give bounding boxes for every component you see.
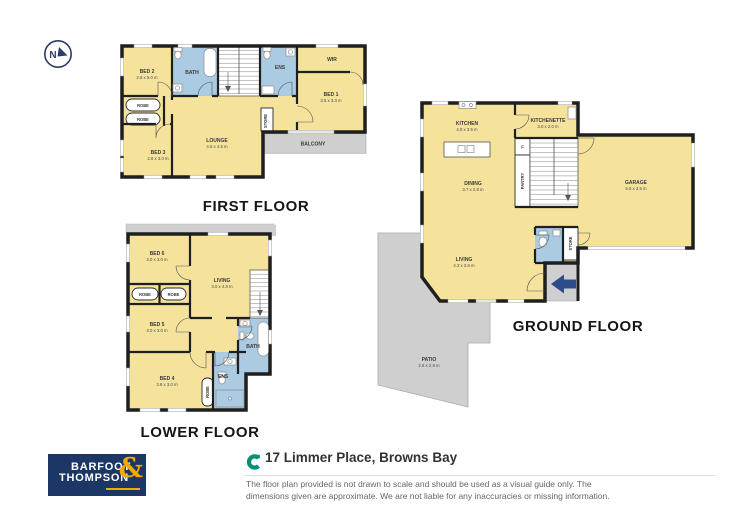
compass-arrow-icon: [58, 47, 68, 57]
room-dims-bed1: 3.5 x 3.3 m: [320, 98, 342, 103]
room-dims-bed6: 3.0 x 3.0 m: [146, 257, 168, 262]
room-label-robe: ROBE: [205, 386, 210, 398]
room-dims-living: 3.0 x 4.8 m: [211, 284, 233, 289]
room-dims-bed4: 3.8 x 3.0 m: [156, 382, 178, 387]
disclaimer-line2: dimensions given are approximate. We are…: [246, 491, 610, 502]
disclaimer-line1: The floor plan provided is not drawn to …: [246, 479, 592, 490]
ground-floor-title: GROUND FLOOR: [513, 318, 644, 335]
room-dims-kitchen: 4.5 x 3.5 m: [456, 127, 478, 132]
logo-ampersand: &: [119, 454, 143, 484]
brand-c-icon: [246, 454, 261, 470]
first-floor-plan: BED 2 2.8 x 5.0 m BATH ENS WIR BED 1 3.5…: [120, 44, 372, 196]
room-label-ens: ENS: [218, 374, 229, 380]
room-dims-bed2: 2.8 x 5.0 m: [136, 75, 158, 80]
room-label-store: STORE: [568, 236, 573, 250]
room-dims-dining: 3.7 x 2.8 m: [462, 187, 484, 192]
room-label-store: STORE: [263, 114, 268, 128]
floor-plan-page: N: [0, 0, 749, 531]
room-label-wir: WIR: [327, 57, 337, 63]
room-label-ens: ENS: [275, 65, 286, 71]
property-address: 17 Limmer Place, Browns Bay: [265, 450, 457, 465]
barfoot-thompson-logo: BARFOOT THOMPSON &: [48, 454, 146, 496]
room-label-balcony: BALCONY: [301, 142, 326, 148]
first-floor-title: FIRST FLOOR: [203, 198, 310, 215]
garage-door: [588, 246, 685, 250]
room-label-robe: ROBE: [139, 292, 151, 297]
logo-gold-bar: [106, 488, 140, 491]
room-dims-lounge: 4.5 x 4.5 m: [206, 144, 228, 149]
room-dims-living: 4.3 x 3.6 m: [453, 263, 475, 268]
room-label-bath: BATH: [185, 70, 199, 76]
room-label-robe: ROBE: [137, 117, 149, 122]
lower-floor-title: LOWER FLOOR: [140, 424, 259, 441]
room-label-bath: BATH: [246, 344, 260, 350]
ground-floor-plan: KITCHEN 4.5 x 3.5 m KITCHENETTE 3.0 x 2.…: [372, 85, 717, 415]
room-dims-bed5: 3.0 x 3.0 m: [146, 328, 168, 333]
terrain-strip: [126, 224, 274, 233]
room-dims-bed3: 2.8 x 3.0 m: [147, 156, 169, 161]
north-compass-icon: N: [42, 38, 74, 70]
compass-north-label: N: [49, 50, 56, 61]
room-dims-kitchenette: 3.0 x 2.0 m: [537, 124, 559, 129]
room-label-pantry: PANTRY: [520, 173, 525, 190]
room-dims-patio: 2.8 x 2.8 m: [418, 363, 440, 368]
footer-divider: [245, 475, 715, 476]
room-label-robe: ROBE: [137, 103, 149, 108]
room-label-robe: ROBE: [168, 292, 180, 297]
room-dims-garage: 5.5 x 3.5 m: [625, 186, 647, 191]
lower-floor-plan: BED 6 3.0 x 3.0 m LIVING 3.0 x 4.8 m ROB…: [112, 222, 290, 422]
